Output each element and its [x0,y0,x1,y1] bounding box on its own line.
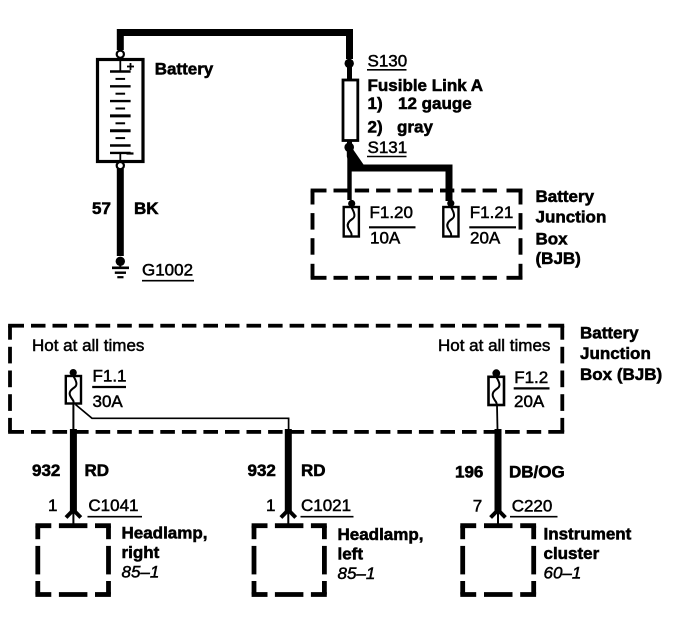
svg-text:Headlamp,: Headlamp, [338,525,424,544]
svg-text:F1.1: F1.1 [93,367,127,386]
svg-text:right: right [122,543,160,562]
svg-text:(BJB): (BJB) [536,249,581,268]
svg-text:196: 196 [455,462,483,481]
svg-text:932: 932 [32,461,60,480]
svg-text:S130: S130 [368,52,408,71]
svg-text:Battery: Battery [536,187,595,206]
svg-text:RD: RD [301,461,326,480]
svg-text:85–1: 85–1 [122,563,160,582]
svg-text:1: 1 [266,496,275,515]
svg-text:S131: S131 [368,138,408,157]
svg-text:932: 932 [248,461,276,480]
svg-text:gray: gray [397,117,433,136]
svg-text:30A: 30A [93,392,124,411]
svg-text:Battery: Battery [580,324,639,343]
svg-text:BK: BK [134,199,159,218]
svg-text:F1.20: F1.20 [370,203,413,222]
svg-text:Headlamp,: Headlamp, [122,523,208,542]
svg-text:Battery: Battery [155,60,214,79]
svg-text:Instrument: Instrument [544,524,632,543]
svg-text:F1.21: F1.21 [470,203,513,222]
svg-text:57: 57 [92,199,111,218]
svg-text:60–1: 60–1 [544,564,582,583]
svg-text:10A: 10A [370,228,401,247]
svg-text:85–1: 85–1 [338,564,376,583]
svg-text:left: left [338,545,364,564]
svg-text:cluster: cluster [544,544,600,563]
svg-text:Box (BJB): Box (BJB) [580,365,662,384]
svg-text:DB/OG: DB/OG [509,462,565,481]
svg-text:Hot at all times: Hot at all times [32,336,144,355]
svg-text:Box: Box [536,229,569,248]
svg-text:Junction: Junction [580,344,651,363]
svg-text:1): 1) [368,94,383,113]
svg-text:Fusible Link A: Fusible Link A [368,76,484,95]
svg-text:1: 1 [48,496,57,515]
svg-text:C1041: C1041 [88,496,138,515]
svg-text:F1.2: F1.2 [514,368,548,387]
svg-text:12 gauge: 12 gauge [398,94,472,113]
svg-text:2): 2) [368,117,383,136]
svg-text:7: 7 [473,497,482,516]
svg-text:Hot at all times: Hot at all times [438,336,550,355]
svg-text:RD: RD [85,461,110,480]
svg-text:C220: C220 [512,497,553,516]
svg-text:Junction: Junction [536,208,607,227]
svg-text:20A: 20A [470,228,501,247]
svg-text:C1021: C1021 [301,496,351,515]
svg-text:20A: 20A [514,392,545,411]
svg-text:G1002: G1002 [142,261,193,280]
